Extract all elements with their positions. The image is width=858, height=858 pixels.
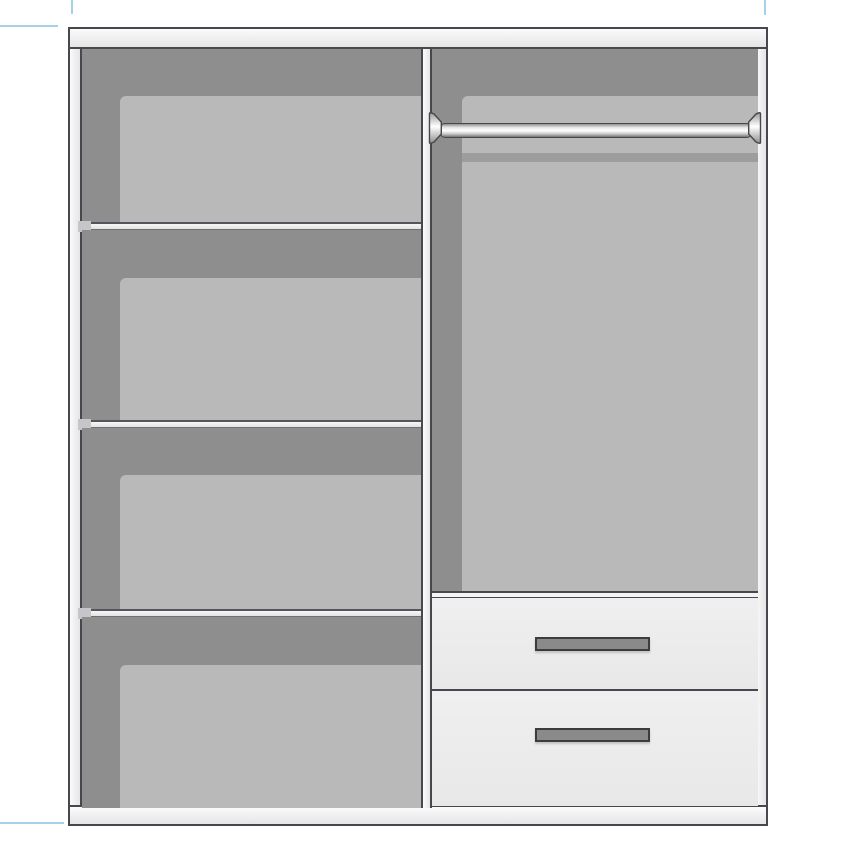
right-hanging-drawer-section	[432, 49, 758, 808]
wardrobe-cabinet	[68, 27, 768, 826]
guide-mark-top-left-horizontal	[0, 25, 58, 27]
shelf-compartment-2	[82, 230, 421, 420]
guide-mark-top-right-vertical	[764, 0, 766, 15]
compartment-3-back-shading	[120, 475, 421, 609]
left-shelf-section	[82, 49, 421, 808]
rail-end-cap-right-icon	[748, 111, 762, 145]
shelf-compartment-1	[82, 49, 421, 222]
drawer-section-top-rail	[432, 591, 758, 598]
drawer-1	[432, 598, 758, 691]
center-divider-panel	[421, 49, 432, 808]
rail-end-cap-left-icon	[428, 111, 442, 145]
guide-mark-bottom-left-horizontal	[0, 822, 64, 824]
shelf-compartment-4	[82, 617, 421, 808]
shelf-3	[82, 609, 421, 617]
drawer-1-handle	[535, 637, 650, 651]
guide-mark-top-left-vertical	[71, 0, 73, 14]
top-panel	[70, 29, 766, 49]
drawer-2	[432, 691, 758, 807]
hanging-compartment-back-shading	[462, 96, 758, 591]
page-canvas	[0, 0, 858, 858]
compartment-2-back-shading	[120, 278, 421, 420]
drawer-2-handle	[535, 728, 650, 742]
rail-shadow-strip	[462, 153, 758, 162]
shelf-1	[82, 222, 421, 230]
clothes-rail	[440, 123, 752, 138]
shelf-compartment-3	[82, 428, 421, 609]
compartment-4-back-shading	[120, 665, 421, 808]
shelf-2	[82, 420, 421, 428]
compartment-1-back-shading	[120, 96, 421, 222]
